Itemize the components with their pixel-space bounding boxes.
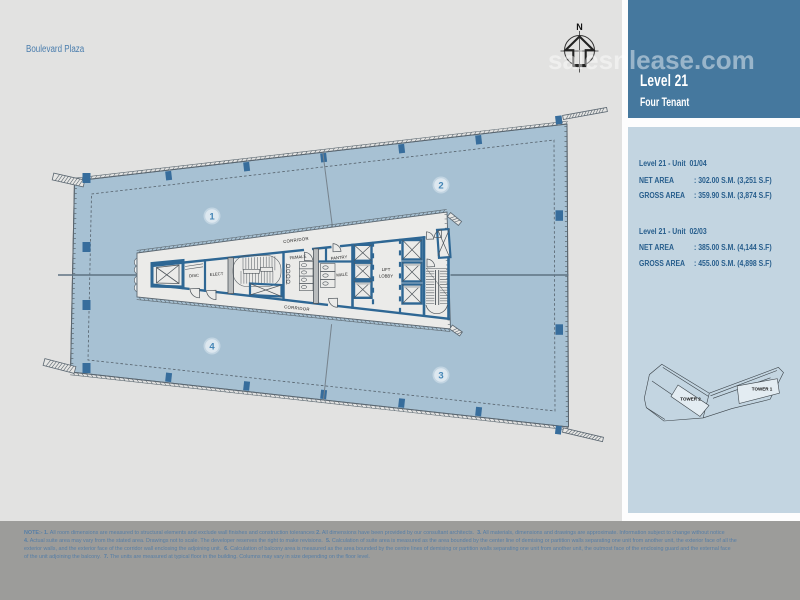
svg-text:4: 4: [209, 341, 215, 352]
svg-text:TOWER 2: TOWER 2: [680, 397, 701, 402]
svg-text:LIFT: LIFT: [382, 267, 391, 272]
svg-text:TOWER 1: TOWER 1: [752, 387, 773, 392]
svg-text:N: N: [576, 22, 583, 32]
svg-text:LOBBY: LOBBY: [379, 274, 393, 279]
svg-text:1: 1: [209, 211, 215, 222]
svg-text:2: 2: [438, 180, 443, 191]
svg-text:DISC: DISC: [189, 273, 199, 279]
svg-text:3: 3: [438, 370, 443, 381]
svg-text:ELECT: ELECT: [210, 271, 224, 277]
